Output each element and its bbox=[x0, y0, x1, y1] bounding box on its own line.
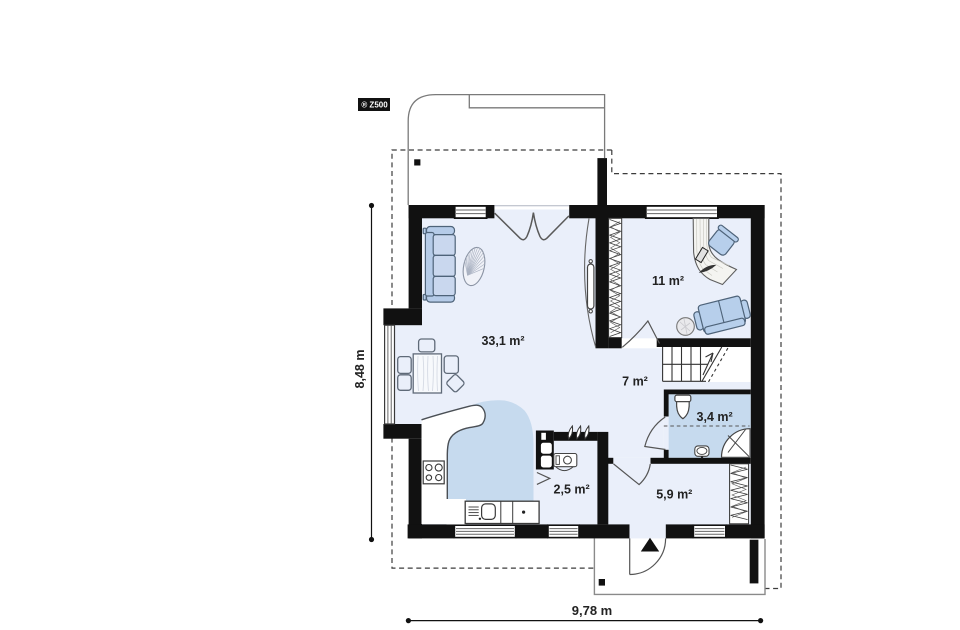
svg-text:3,4 m²: 3,4 m² bbox=[697, 410, 733, 424]
svg-text:7 m²: 7 m² bbox=[622, 375, 648, 389]
svg-text:9,78 m: 9,78 m bbox=[572, 603, 612, 618]
svg-text:8,48 m: 8,48 m bbox=[353, 350, 367, 389]
svg-text:5,9 m²: 5,9 m² bbox=[656, 488, 692, 502]
svg-text:® Z500: ® Z500 bbox=[361, 101, 388, 110]
svg-text:33,1 m²: 33,1 m² bbox=[481, 334, 524, 348]
svg-text:2,5 m²: 2,5 m² bbox=[554, 483, 590, 497]
svg-text:11 m²: 11 m² bbox=[652, 274, 684, 288]
